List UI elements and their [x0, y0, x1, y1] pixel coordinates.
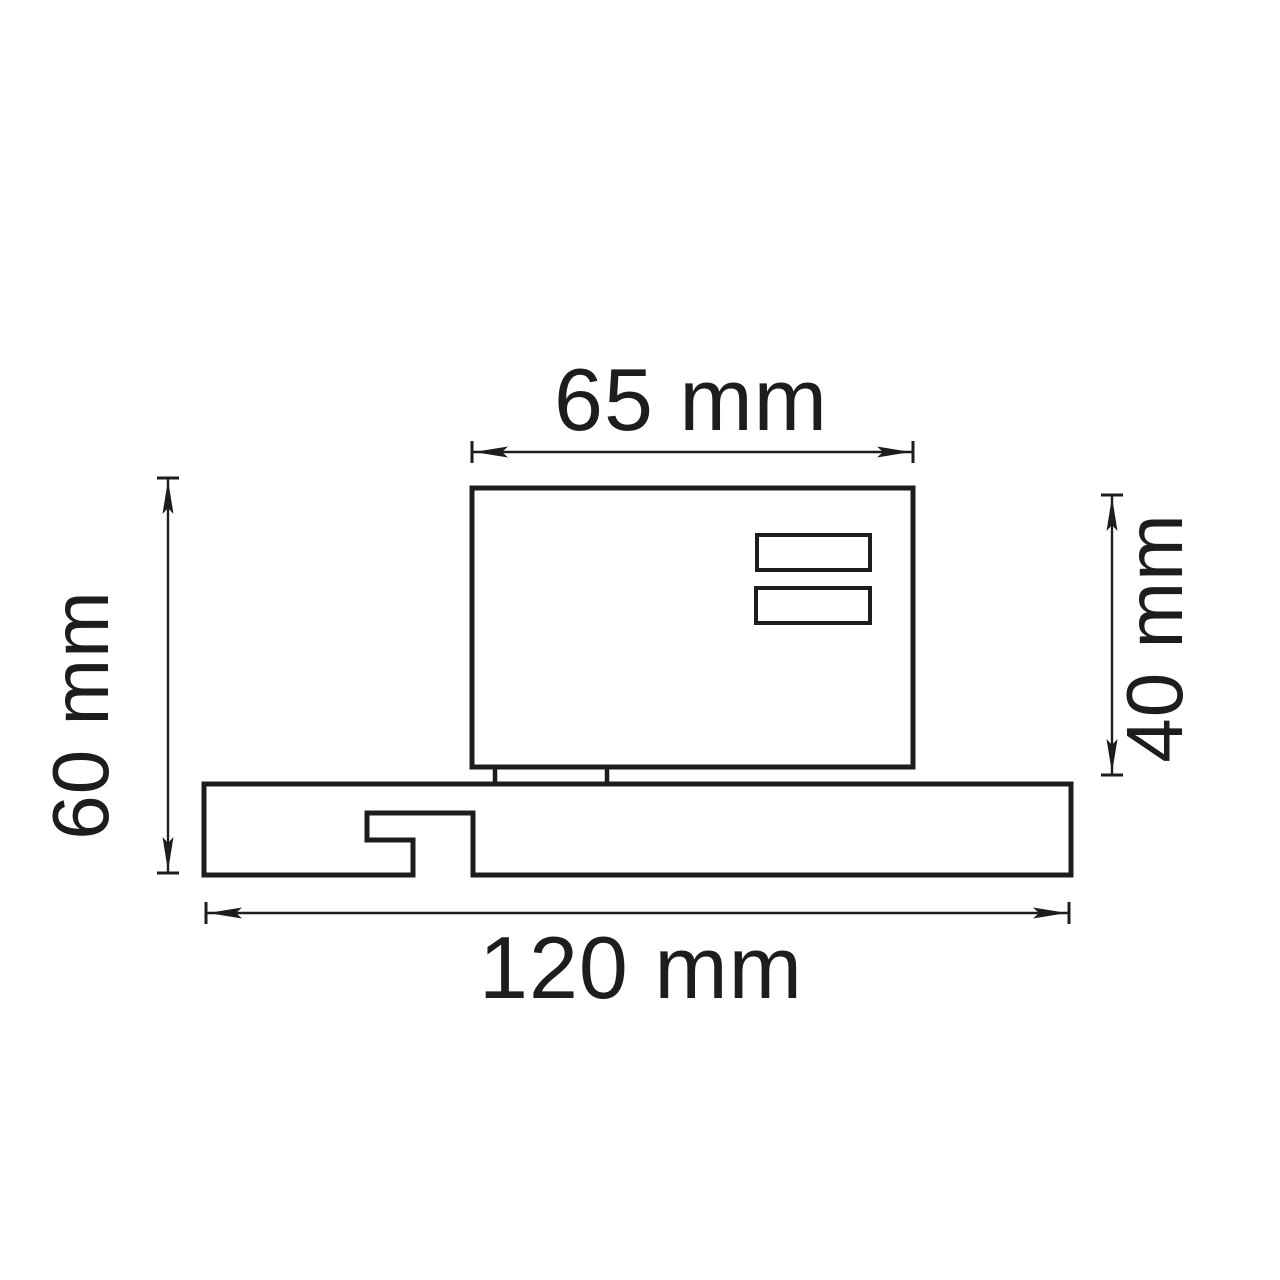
- dim-label-bottom-width: 120 mm: [479, 918, 803, 1017]
- dimension-top-width: 65 mm: [472, 350, 913, 463]
- track-outline: [204, 784, 1071, 875]
- adapter-body: [472, 488, 913, 786]
- body-slot-upper: [757, 535, 870, 570]
- dimension-bottom-width: 120 mm: [206, 902, 1069, 1017]
- body-outline: [472, 488, 913, 767]
- dimension-right-height: 40 mm: [1101, 495, 1199, 775]
- technical-drawing: 65 mm 60 mm 40 mm 120 mm: [0, 0, 1280, 1280]
- track-profile: [204, 784, 1071, 875]
- body-slot-lower: [756, 588, 870, 623]
- dim-label-right-height: 40 mm: [1110, 513, 1199, 763]
- dim-label-top-width: 65 mm: [554, 350, 828, 449]
- dim-label-left-height: 60 mm: [36, 590, 125, 840]
- dimension-left-height: 60 mm: [36, 478, 179, 873]
- drawing-canvas: 65 mm 60 mm 40 mm 120 mm: [0, 0, 1280, 1280]
